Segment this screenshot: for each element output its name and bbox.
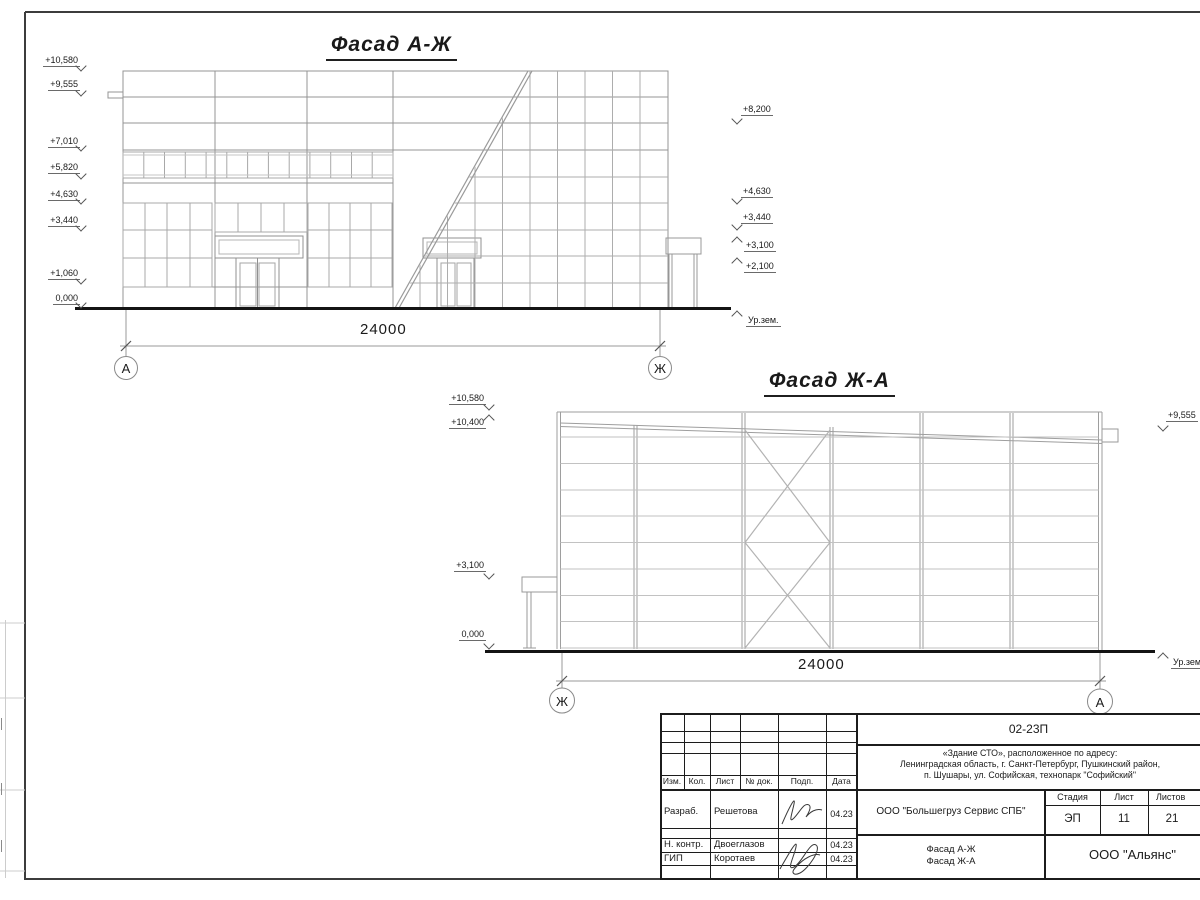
entrance-left bbox=[215, 236, 303, 308]
project-address-line3: п. Шушары, ул. Софийская, технопарк "Соф… bbox=[860, 770, 1200, 780]
row-date: 04.23 bbox=[827, 854, 856, 864]
col-header-podp: Подп. bbox=[778, 776, 826, 786]
drawing-sheet: Фасад А-Ж Фасад Ж-А +10,580 +9,555 +7,01… bbox=[0, 0, 1200, 900]
col-header-doc: № док. bbox=[740, 776, 778, 786]
ribbon-windows bbox=[123, 152, 393, 178]
facade2-title: Фасад Ж-А bbox=[764, 369, 895, 397]
row-date: 04.23 bbox=[827, 809, 856, 819]
ground-level-label: Ур.зем. bbox=[746, 315, 781, 327]
company-name: ООО "Альянс" bbox=[1045, 847, 1200, 862]
row-name: Коротаев bbox=[714, 853, 755, 864]
row-role: Разраб. bbox=[664, 806, 698, 817]
col-header-izm: Изм. bbox=[660, 776, 684, 786]
col-header-kol: Кол. bbox=[684, 776, 710, 786]
elevation-mark: 0,000 bbox=[440, 629, 486, 641]
elevation-mark: +10,580 bbox=[440, 393, 486, 405]
elevation-mark: +10,580 bbox=[34, 55, 80, 67]
facade2-canopy bbox=[522, 577, 557, 648]
diagonal-brace bbox=[395, 71, 532, 308]
axis-bubble-a: А bbox=[1088, 695, 1112, 710]
elevation-mark: +4,630 bbox=[741, 186, 773, 198]
elevation-mark: +3,100 bbox=[744, 240, 776, 252]
elevation-mark: +3,100 bbox=[440, 560, 486, 572]
title-block: Изм. Кол. Лист № док. Подп. Дата Разраб.… bbox=[660, 713, 1200, 880]
row-role: ГИП bbox=[664, 853, 683, 864]
row-date: 04.23 bbox=[827, 840, 856, 850]
margin-text-fragment bbox=[1, 783, 2, 795]
sheet-content-line2: Фасад Ж-А bbox=[857, 856, 1045, 867]
project-address-line2: Ленинградская область, г. Санкт-Петербур… bbox=[860, 759, 1200, 769]
row-name: Решетова bbox=[714, 806, 758, 817]
sheet-content-line1: Фасад А-Ж bbox=[857, 844, 1045, 855]
x-bracing bbox=[745, 430, 830, 648]
axis-bubble-zh: Ж bbox=[648, 361, 672, 376]
elevation-mark: +5,820 bbox=[34, 162, 80, 174]
margin-text-fragment bbox=[1, 718, 2, 730]
elevation-mark: +7,010 bbox=[34, 136, 80, 148]
dimension-label: 24000 bbox=[360, 321, 407, 338]
col-header-list: Лист bbox=[710, 776, 740, 786]
curtain-wall-grid bbox=[395, 71, 668, 308]
signature-scribble bbox=[778, 792, 826, 830]
elevation-mark: +4,630 bbox=[34, 189, 80, 201]
elevation-mark: +10,400 bbox=[440, 417, 486, 429]
elevation-mark: +8,200 bbox=[741, 104, 773, 116]
dimension-label: 24000 bbox=[798, 656, 845, 673]
sheets-total: 21 bbox=[1148, 813, 1196, 825]
project-address-line1: «Здание СТО», расположенное по адресу: bbox=[860, 748, 1200, 758]
right-canopy bbox=[666, 238, 701, 307]
row-role: Н. контр. bbox=[664, 839, 703, 850]
entrance-middle bbox=[423, 238, 481, 308]
client-name: ООО "Большегруз Сервис СПБ" bbox=[857, 806, 1045, 817]
facade1-title: Фасад А-Ж bbox=[326, 33, 457, 61]
stage-header: Стадия bbox=[1045, 792, 1100, 802]
elevation-mark: +1,060 bbox=[34, 268, 80, 280]
sheet-number: 11 bbox=[1100, 813, 1148, 825]
elevation-mark: +3,440 bbox=[34, 215, 80, 227]
stage-value: ЭП bbox=[1045, 813, 1100, 825]
col-header-data: Дата bbox=[826, 776, 857, 786]
elevation-mark: +9,555 bbox=[1166, 410, 1198, 422]
sheet-header: Лист bbox=[1100, 792, 1148, 802]
axis-bubble-a: А bbox=[114, 361, 138, 376]
elevation-mark: +9,555 bbox=[34, 79, 80, 91]
elevation-mark: +2,100 bbox=[744, 261, 776, 273]
ground-level-label: Ур.зем. bbox=[1171, 657, 1200, 669]
margin-text-fragment bbox=[1, 840, 2, 852]
doc-number: 02-23П bbox=[857, 722, 1200, 736]
elevation-mark: +3,440 bbox=[741, 212, 773, 224]
elevation-mark: 0,000 bbox=[34, 293, 80, 305]
row-name: Двоеглазов bbox=[714, 839, 765, 850]
axis-bubble-zh: Ж bbox=[550, 694, 574, 709]
sheets-header: Листов bbox=[1156, 792, 1185, 802]
margin-table bbox=[0, 620, 25, 878]
signature-scribble bbox=[774, 831, 826, 877]
